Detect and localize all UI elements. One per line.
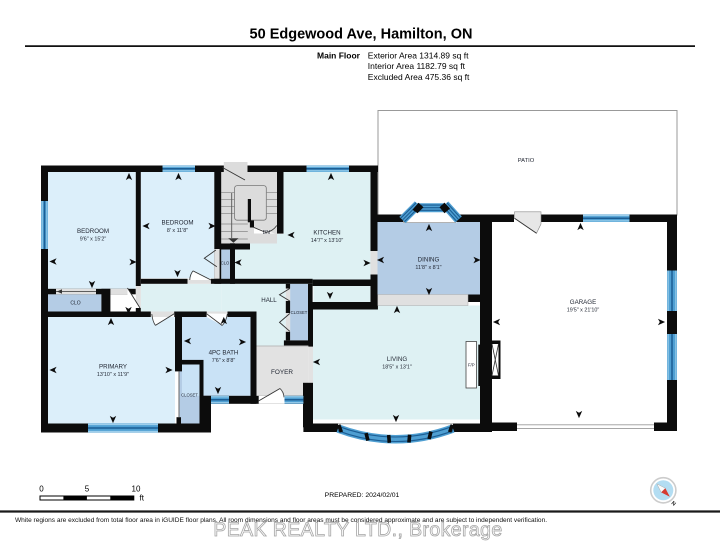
svg-text:CLOSET: CLOSET — [291, 310, 308, 315]
svg-text:FOYER: FOYER — [271, 369, 293, 376]
svg-text:19'5" x 21'10": 19'5" x 21'10" — [567, 308, 600, 314]
svg-text:11'8" x 8'1": 11'8" x 8'1" — [415, 265, 441, 271]
svg-text:PREPARED: 2024/02/01: PREPARED: 2024/02/01 — [325, 492, 400, 499]
svg-text:9'6" x 15'2": 9'6" x 15'2" — [80, 236, 107, 242]
svg-text:ft: ft — [140, 494, 145, 503]
svg-text:10: 10 — [132, 485, 141, 494]
svg-text:HALL: HALL — [261, 297, 277, 304]
svg-text:PRIMARY: PRIMARY — [99, 364, 127, 371]
svg-text:LIVING: LIVING — [387, 356, 407, 363]
svg-text:White regions are excluded fro: White regions are excluded from total fl… — [15, 517, 547, 524]
svg-text:5: 5 — [85, 485, 90, 494]
svg-text:0: 0 — [39, 485, 44, 494]
svg-text:BEDROOM: BEDROOM — [162, 220, 194, 227]
svg-text:KITCHEN: KITCHEN — [313, 230, 340, 237]
svg-text:CLO: CLO — [70, 301, 80, 307]
svg-text:GARAGE: GARAGE — [570, 299, 596, 306]
svg-text:Main Floor: Main Floor — [317, 50, 361, 60]
svg-text:CLO: CLO — [221, 261, 230, 266]
svg-text:13'10" x 11'9": 13'10" x 11'9" — [97, 372, 129, 378]
svg-text:14'7" x 13'10": 14'7" x 13'10" — [311, 238, 344, 244]
svg-text:PATIO: PATIO — [518, 158, 535, 164]
svg-text:CLOSET: CLOSET — [181, 393, 198, 398]
svg-text:DN: DN — [263, 230, 271, 236]
svg-text:F/P: F/P — [468, 363, 475, 368]
svg-text:Excluded Area 475.36 sq ft: Excluded Area 475.36 sq ft — [368, 72, 470, 82]
svg-text:50 Edgewood Ave, Hamilton, ON: 50 Edgewood Ave, Hamilton, ON — [250, 27, 473, 43]
svg-text:BEDROOM: BEDROOM — [77, 228, 109, 235]
svg-text:7'6" x 8'8": 7'6" x 8'8" — [212, 358, 236, 364]
svg-text:8' x 11'8": 8' x 11'8" — [167, 228, 188, 234]
svg-text:18'5" x 13'1": 18'5" x 13'1" — [382, 365, 412, 371]
svg-text:Interior Area 1182.79 sq ft: Interior Area 1182.79 sq ft — [368, 61, 466, 71]
svg-text:DINING: DINING — [418, 257, 440, 264]
svg-text:Exterior Area 1314.89 sq ft: Exterior Area 1314.89 sq ft — [368, 50, 469, 60]
svg-text:4PC BATH: 4PC BATH — [209, 350, 239, 357]
